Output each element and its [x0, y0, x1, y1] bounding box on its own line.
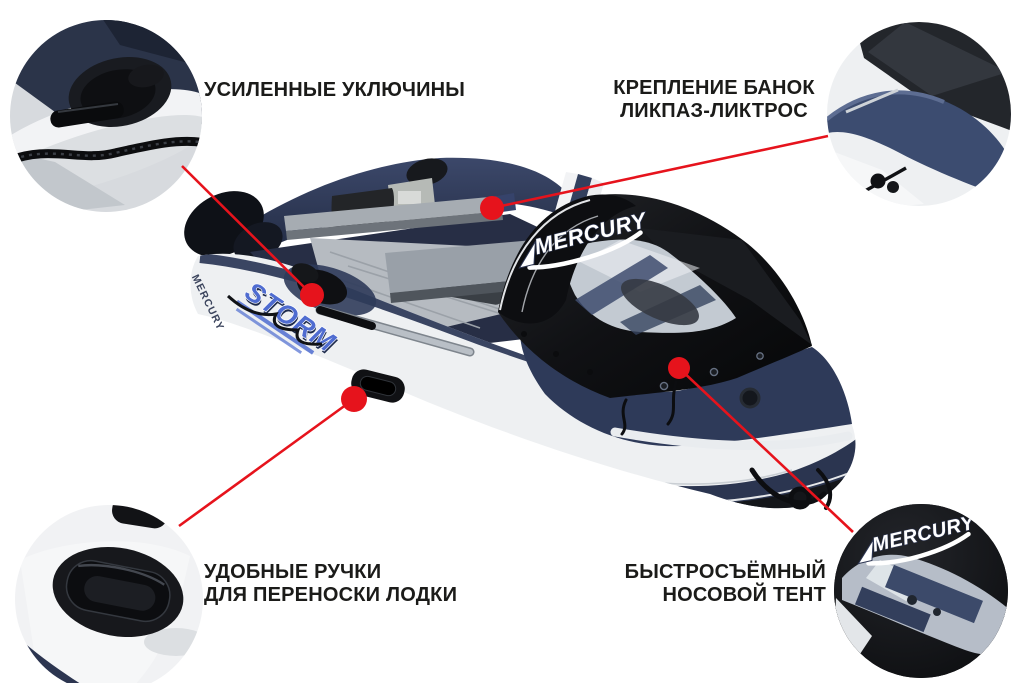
tent-photo-rivet	[933, 608, 941, 616]
eyelet	[757, 353, 763, 359]
tie-dot	[553, 351, 559, 357]
callout-label-oarlocks: УСИЛЕННЫЕ УКЛЮЧИНЫ	[204, 79, 465, 102]
callout-label-line: УСИЛЕННЫЕ УКЛЮЧИНЫ	[204, 79, 465, 102]
tie-dot	[521, 331, 527, 337]
marker-oarlocks	[300, 283, 324, 307]
callout-label-line: БЫСТРОСЪЁМНЫЙ	[570, 561, 826, 584]
boat-infographic: MERCURY	[0, 0, 1024, 683]
connector-handles	[179, 399, 354, 526]
callout-label-line: НОСОВОЙ ТЕНТ	[570, 584, 826, 607]
detail-photo-bow-tent: MERCURY	[830, 500, 1012, 682]
connector-seat-mount	[492, 136, 828, 208]
transom-sticker	[398, 191, 421, 204]
eyelet	[660, 382, 667, 389]
callout-label-line: ЛИКПАЗ-ЛИКТРОС	[600, 100, 828, 123]
detail-photo-handle	[12, 494, 208, 683]
callout-label-bow-tent: БЫСТРОСЪЁМНЫЙ НОСОВОЙ ТЕНТ	[570, 561, 826, 607]
callout-label-handles: УДОБНЫЕ РУЧКИ ДЛЯ ПЕРЕНОСКИ ЛОДКИ	[204, 561, 457, 607]
air-valve	[741, 389, 759, 407]
tent-photo-rivet	[907, 595, 917, 605]
eyelet	[710, 368, 717, 375]
callout-label-line: УДОБНЫЕ РУЧКИ	[204, 561, 457, 584]
callout-label-line: КРЕПЛЕНИЕ БАНОК	[600, 77, 828, 100]
callout-label-seat-mount: КРЕПЛЕНИЕ БАНОК ЛИКПАЗ-ЛИКТРОС	[600, 77, 828, 123]
marker-handles	[341, 386, 367, 412]
detail-photo-seat-mount	[824, 12, 1015, 210]
seat-photo-rope-knot	[887, 181, 899, 193]
tie-dot	[587, 369, 593, 375]
callout-label-line: ДЛЯ ПЕРЕНОСКИ ЛОДКИ	[204, 584, 457, 607]
marker-seat-mount	[480, 196, 504, 220]
infographic-graphics: MERCURY	[0, 0, 1024, 683]
detail-photo-oarlock	[0, 0, 226, 218]
marker-bow-tent	[668, 357, 690, 379]
seat-photo-rope-knot	[871, 174, 886, 189]
boat-photo: MERCURY STORM STORM	[130, 154, 880, 580]
